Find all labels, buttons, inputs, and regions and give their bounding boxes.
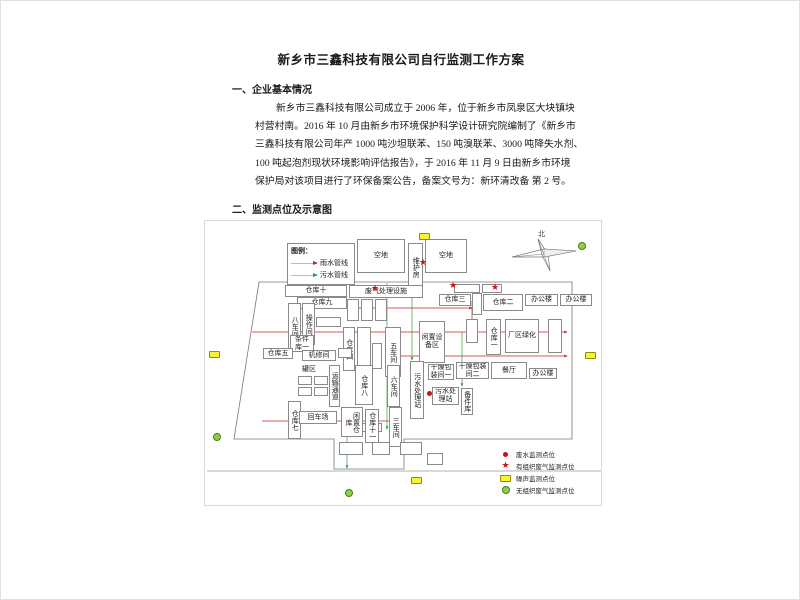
- building-box: 闲置仓库: [341, 407, 363, 437]
- building-box: 仓库十: [285, 285, 347, 297]
- legend-item-label: 噪声监测点位: [516, 473, 555, 483]
- legend-item-label: 有组织废气监测点位: [516, 461, 575, 471]
- building-box: 机修间: [302, 350, 336, 361]
- diagram-legend-pipelines: 图例： 雨水管线 污水管线: [287, 243, 355, 285]
- unorg-legend-icon: [502, 486, 510, 494]
- building-box: 污水处理站: [410, 361, 424, 419]
- building-box: 回车场: [299, 411, 337, 424]
- building-box: 运输通道: [329, 365, 340, 407]
- organized-gas-monitoring-point-icon: ★: [491, 284, 499, 293]
- building-box: 办公楼: [529, 368, 557, 379]
- building-box: 餐厅: [491, 362, 527, 379]
- building-box: 干燥包装间一: [428, 364, 454, 380]
- small-box: [298, 387, 312, 396]
- noise-monitoring-point-icon: [585, 352, 596, 359]
- fugitive-gas-monitoring-point-icon: [213, 433, 221, 441]
- paragraph-line: 村营村南。2016 年 10 月由新乡市环境保护科学设计研究院编制了《新乡市: [255, 118, 557, 136]
- building-box: 仓库八: [355, 365, 373, 405]
- fugitive-gas-monitoring-point-icon: [345, 489, 353, 497]
- organized-gas-monitoring-point-icon: ★: [419, 259, 427, 268]
- document-title: 新乡市三鑫科技有限公司自行监测工作方案: [1, 49, 800, 68]
- noise-monitoring-point-icon: [419, 233, 430, 240]
- noise-monitoring-point-icon: [209, 351, 220, 358]
- legend-item-water: 废水监测点位: [499, 448, 603, 460]
- plant-figure: 图例： 雨水管线 污水管线 北 废水监测点位★有组织废气监测点位噪声监测点位无组…: [204, 220, 602, 506]
- small-box: [316, 317, 341, 327]
- building-box: 空地: [357, 239, 405, 273]
- legend-item-label: 无组织废气监测点位: [516, 485, 575, 495]
- small-box: [372, 442, 390, 455]
- organized-gas-monitoring-point-icon: ★: [449, 282, 457, 291]
- small-box: [298, 376, 312, 385]
- svg-text:北: 北: [538, 230, 545, 238]
- small-box: [400, 442, 422, 455]
- noise-legend-icon: [500, 475, 511, 482]
- paragraph-line: 新乡市三鑫科技有限公司成立于 2006 年，位于新乡市凤泉区大块镇块: [255, 100, 557, 118]
- building-box: 厂区绿化: [505, 319, 539, 353]
- legend-item-org: ★有组织废气监测点位: [499, 460, 603, 472]
- small-box: [427, 453, 443, 465]
- building-box: 空地: [425, 239, 467, 273]
- small-box: [339, 442, 363, 455]
- building-box: 罐区: [298, 365, 320, 375]
- building-box: 仓库一: [486, 319, 501, 355]
- legend-item-noise: 噪声监测点位: [499, 472, 603, 484]
- org-legend-icon: ★: [501, 462, 509, 471]
- building-box: 仓库三: [439, 294, 471, 306]
- small-box: [375, 299, 387, 321]
- section-heading-1: 一、企业基本情况: [232, 81, 312, 96]
- small-box: [314, 376, 328, 385]
- building-box: 办公楼: [525, 294, 558, 306]
- building-box: 办公楼: [560, 294, 592, 306]
- building-box: 仓库二: [483, 294, 523, 311]
- rainwater-line-icon: [291, 263, 317, 264]
- building-box: 备件库: [461, 388, 473, 415]
- page: { "document": { "title": "新乡市三鑫科技有限公司自行监…: [0, 0, 800, 600]
- section-heading-2: 二、监测点位及示意图: [232, 201, 332, 216]
- noise-monitoring-point-icon: [411, 477, 422, 484]
- legend-item-label: 雨水管线: [320, 258, 348, 268]
- paragraph: 新乡市三鑫科技有限公司成立于 2006 年，位于新乡市凤泉区大块镇块 村营村南。…: [255, 100, 557, 191]
- small-box: [338, 348, 352, 358]
- building-box: 干燥包装间二: [456, 362, 489, 379]
- small-box: [548, 319, 562, 353]
- legend-item-label: 污水管线: [320, 270, 348, 280]
- building-box: 三车间: [389, 407, 402, 447]
- building-box: 仓库十一: [365, 409, 379, 443]
- legend-item-unorg: 无组织废气监测点位: [499, 484, 603, 496]
- small-box: [314, 387, 328, 396]
- building-box: 六车间: [387, 365, 400, 407]
- wastewater-monitoring-point-icon: [427, 391, 432, 396]
- legend-item-label: 废水监测点位: [516, 449, 555, 459]
- small-box: [347, 299, 359, 321]
- fugitive-gas-monitoring-point-icon: [578, 242, 586, 250]
- small-box: [372, 343, 382, 369]
- sewage-line-icon: [291, 275, 317, 276]
- legend-item-rainwater: 雨水管线: [291, 257, 351, 269]
- legend-title: 图例：: [291, 246, 351, 256]
- small-box: [361, 299, 373, 321]
- diagram-legend-monitoring-points: 废水监测点位★有组织废气监测点位噪声监测点位无组织废气监测点位: [499, 448, 603, 496]
- legend-item-sewage: 污水管线: [291, 269, 351, 281]
- small-box: [466, 319, 478, 343]
- paragraph-line: 三鑫科技有限公司年产 1000 吨沙坦联苯、150 吨溴联苯、3000 吨降失水…: [255, 136, 557, 154]
- compass-rose-icon: 北: [508, 227, 580, 279]
- paragraph-line: 100 吨起泡剂现状环境影响评估报告》，于 2016 年 11 月 9 日由新乡…: [255, 155, 557, 173]
- water-legend-icon: [503, 452, 508, 457]
- small-box: [472, 293, 482, 315]
- paragraph-line: 保护局对该项目进行了环保备案公告，备案文号为：新环清改备 第 2 号。: [255, 173, 557, 191]
- organized-gas-monitoring-point-icon: ★: [371, 285, 379, 294]
- building-box: 闲置设备区: [419, 321, 445, 363]
- building-box: 仓库五: [263, 348, 293, 359]
- building-box: 废气处理设施: [349, 285, 423, 298]
- building-box: 污水处理站: [432, 387, 459, 405]
- small-box: [454, 284, 480, 293]
